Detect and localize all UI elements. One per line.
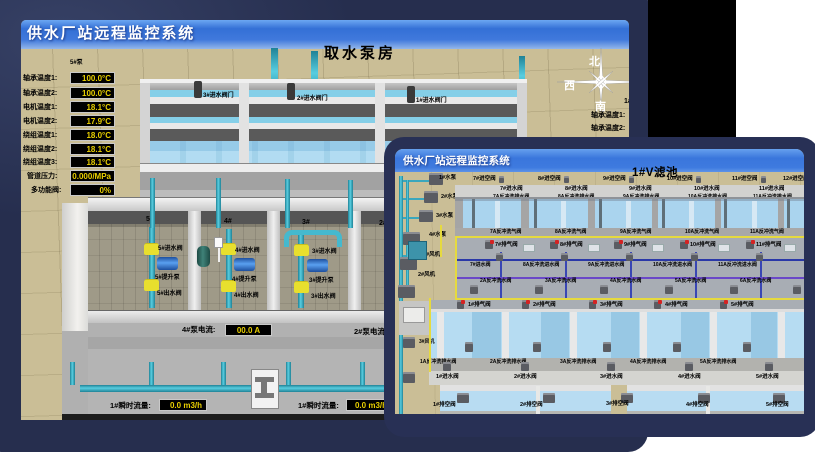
svg-text:北: 北 [589, 54, 600, 68]
svg-text:西: 西 [564, 79, 575, 92]
svg-text:南: 南 [595, 99, 606, 113]
